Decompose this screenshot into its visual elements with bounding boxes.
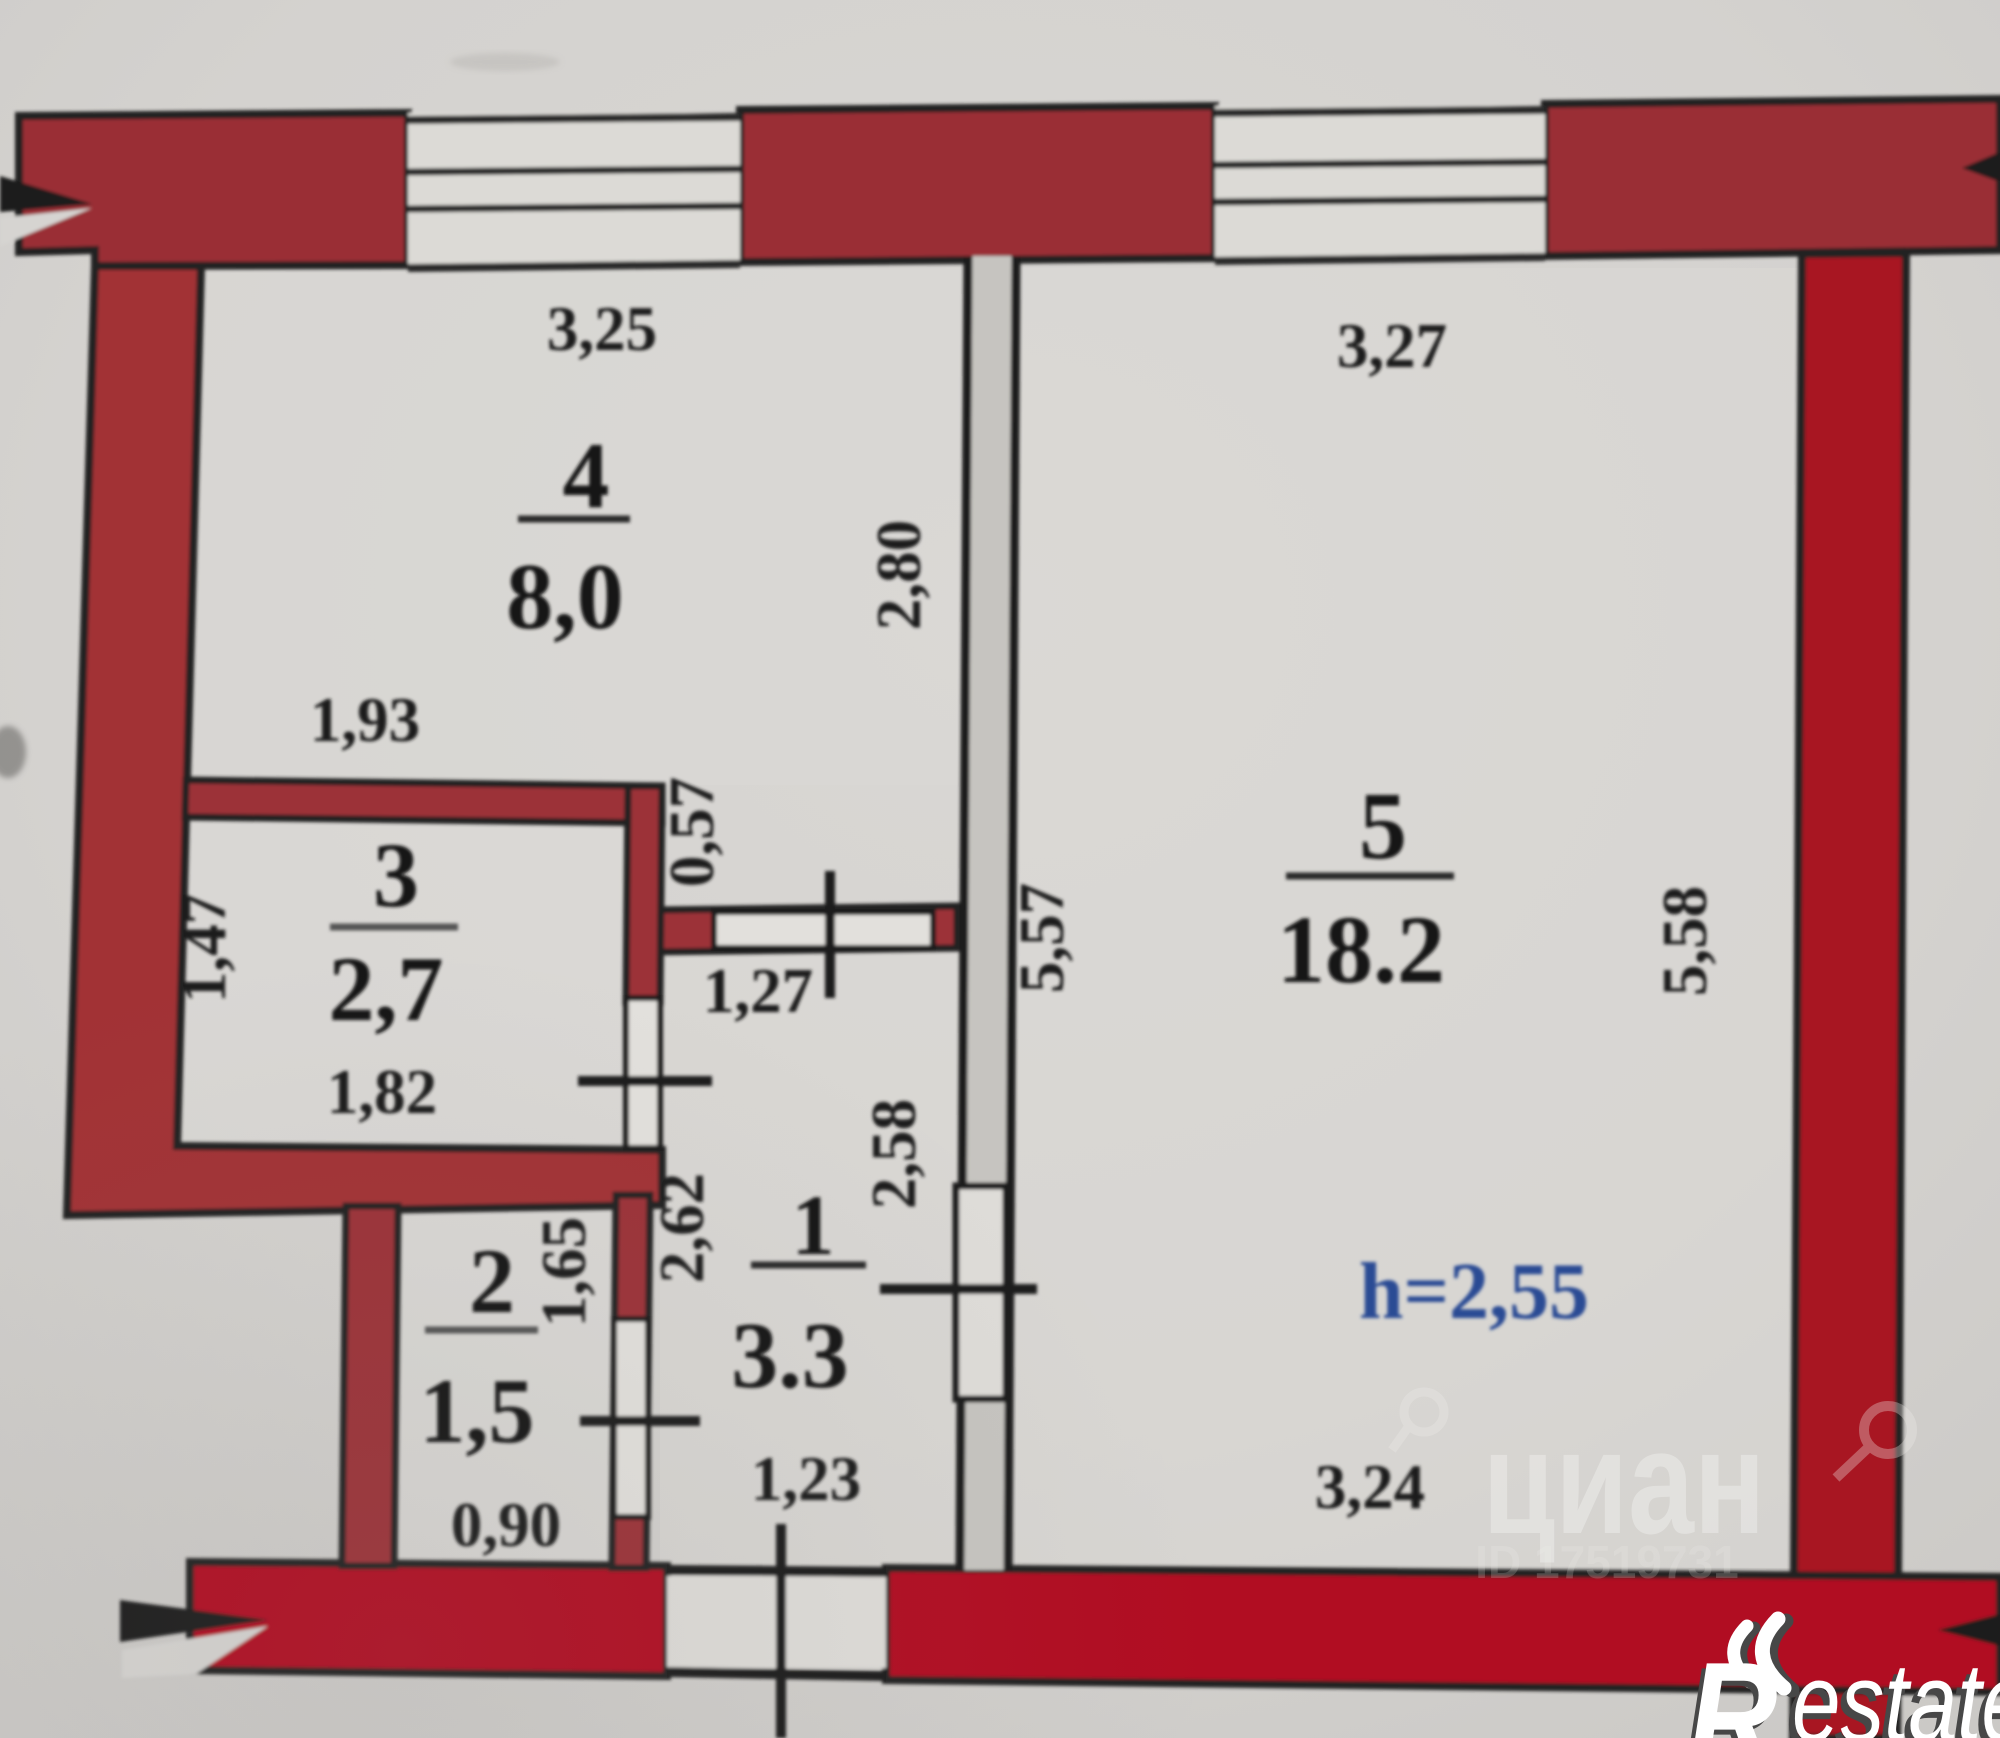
svg-text:h=2,55: h=2,55: [1359, 1248, 1589, 1336]
svg-text:1,27: 1,27: [703, 956, 813, 1026]
svg-text:ID 17519731: ID 17519731: [1475, 1536, 1738, 1588]
svg-text:1,65: 1,65: [529, 1217, 599, 1327]
svg-text:2,58: 2,58: [859, 1099, 929, 1209]
svg-text:3,25: 3,25: [547, 294, 657, 364]
svg-text:3: 3: [373, 824, 419, 926]
svg-text:2: 2: [469, 1230, 515, 1332]
svg-text:1: 1: [792, 1177, 835, 1273]
svg-text:3,27: 3,27: [1337, 311, 1447, 381]
svg-text:1,47: 1,47: [169, 893, 239, 1003]
svg-text:3,24: 3,24: [1315, 1452, 1425, 1522]
svg-text:3.3: 3.3: [731, 1304, 849, 1408]
svg-text:estate: estate: [1792, 1641, 2000, 1738]
svg-text:1,93: 1,93: [310, 685, 420, 755]
svg-text:2,80: 2,80: [864, 520, 934, 630]
svg-text:1,5: 1,5: [420, 1360, 535, 1462]
svg-text:1,23: 1,23: [751, 1444, 861, 1514]
svg-text:2,62: 2,62: [647, 1173, 717, 1283]
svg-text:8,0: 8,0: [506, 545, 624, 649]
svg-text:2,7: 2,7: [329, 938, 444, 1040]
svg-text:4: 4: [563, 424, 610, 528]
svg-text:1,82: 1,82: [327, 1057, 437, 1127]
svg-text:5,57: 5,57: [1007, 883, 1077, 993]
svg-text:18.2: 18.2: [1277, 896, 1445, 1003]
svg-text:5,58: 5,58: [1650, 886, 1720, 996]
svg-text:R: R: [1688, 1630, 1778, 1738]
svg-text:0,90: 0,90: [451, 1490, 561, 1560]
svg-text:0,57: 0,57: [657, 777, 727, 887]
svg-text:5: 5: [1359, 772, 1407, 879]
